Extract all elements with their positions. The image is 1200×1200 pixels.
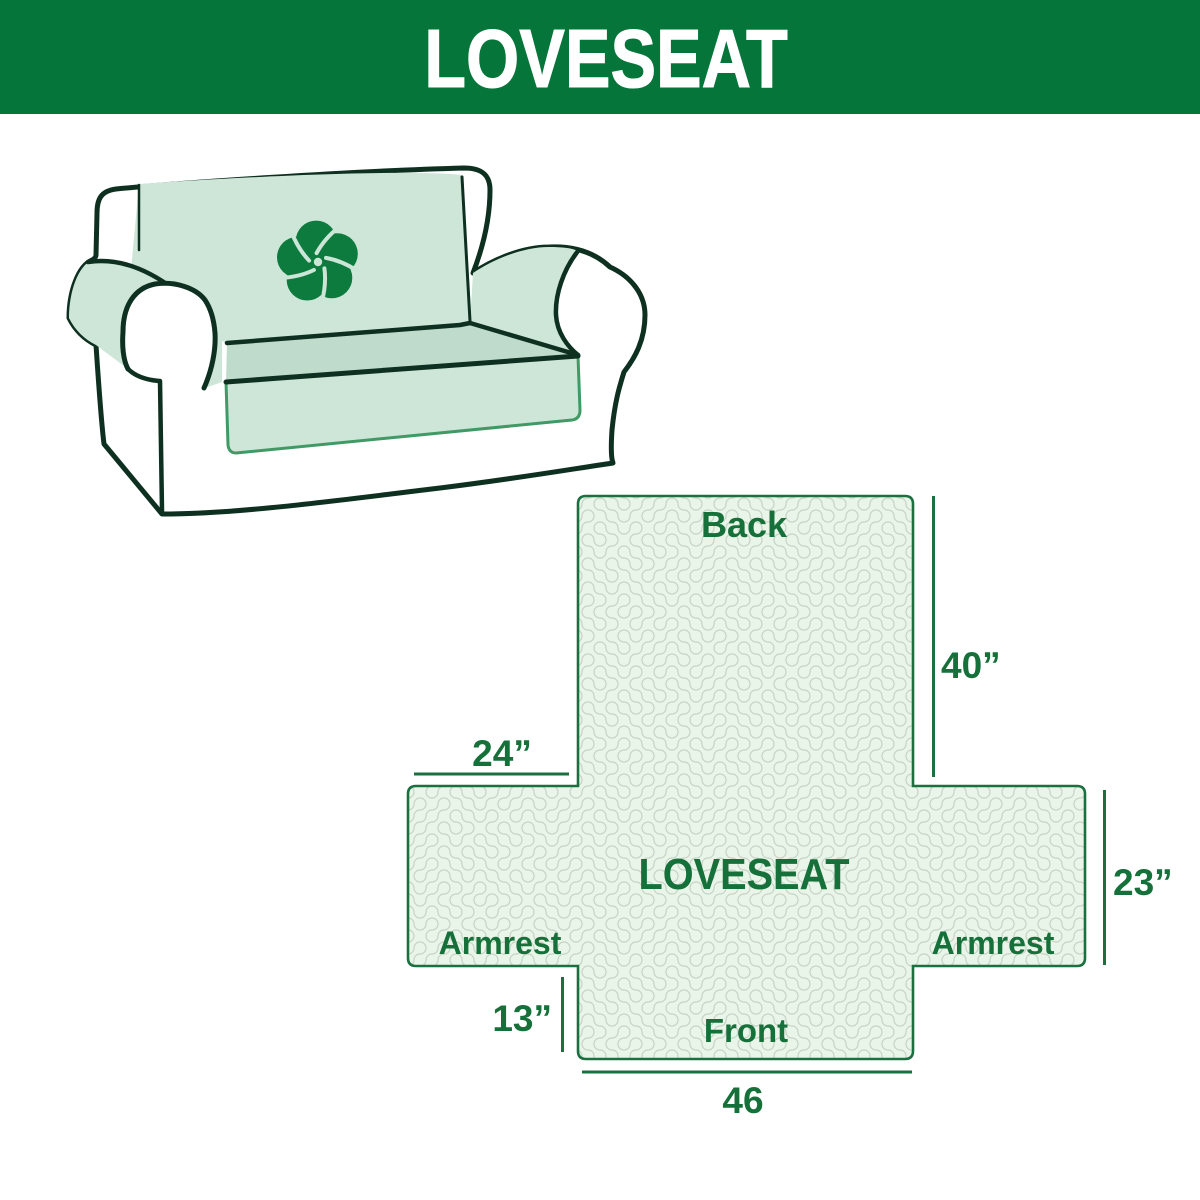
svg-text:40”: 40” xyxy=(941,645,1001,686)
svg-text:Back: Back xyxy=(701,504,788,545)
svg-text:Armrest: Armrest xyxy=(932,925,1055,961)
svg-text:Armrest: Armrest xyxy=(439,925,562,961)
svg-text:LOVESEAT: LOVESEAT xyxy=(639,850,850,899)
svg-text:23”: 23” xyxy=(1113,862,1173,903)
svg-text:Front: Front xyxy=(704,1012,788,1049)
svg-text:24”: 24” xyxy=(472,733,532,774)
svg-text:46: 46 xyxy=(722,1080,763,1121)
svg-text:13”: 13” xyxy=(492,998,552,1039)
